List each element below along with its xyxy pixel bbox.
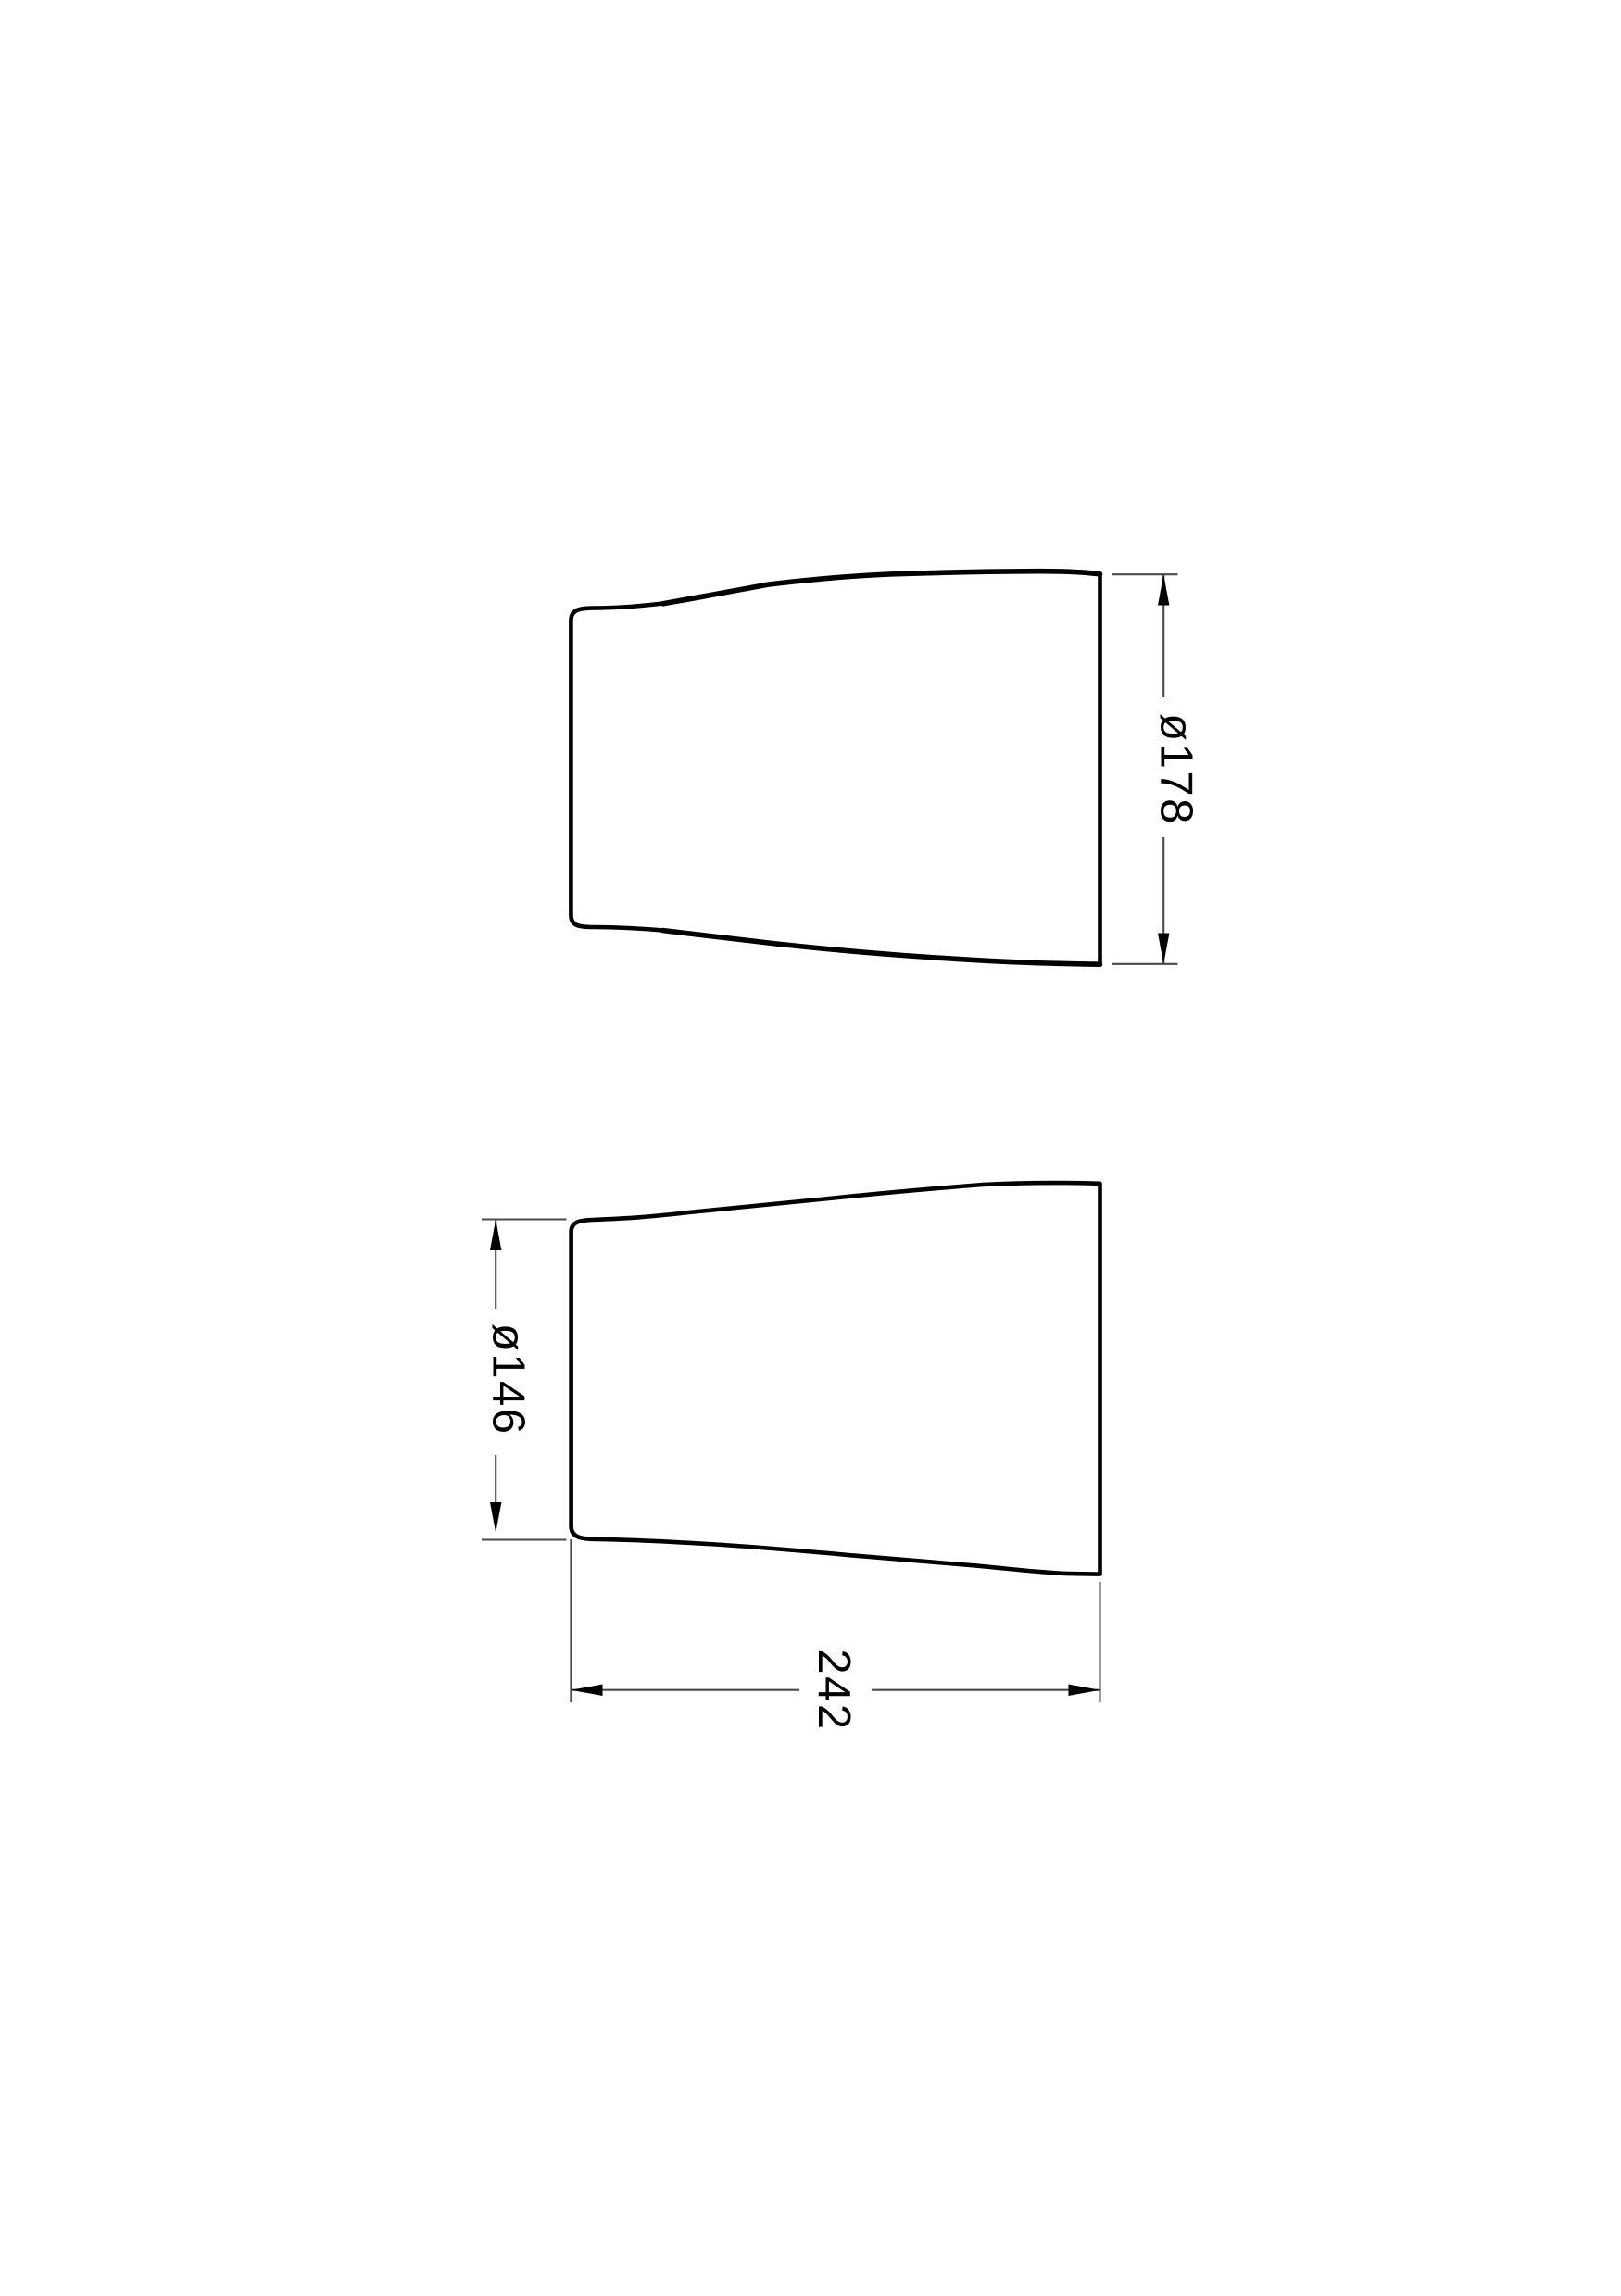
svg-text:242: 242 xyxy=(809,1649,859,1731)
svg-text:ø146: ø146 xyxy=(484,1324,534,1437)
svg-text:ø178: ø178 xyxy=(1151,713,1201,826)
